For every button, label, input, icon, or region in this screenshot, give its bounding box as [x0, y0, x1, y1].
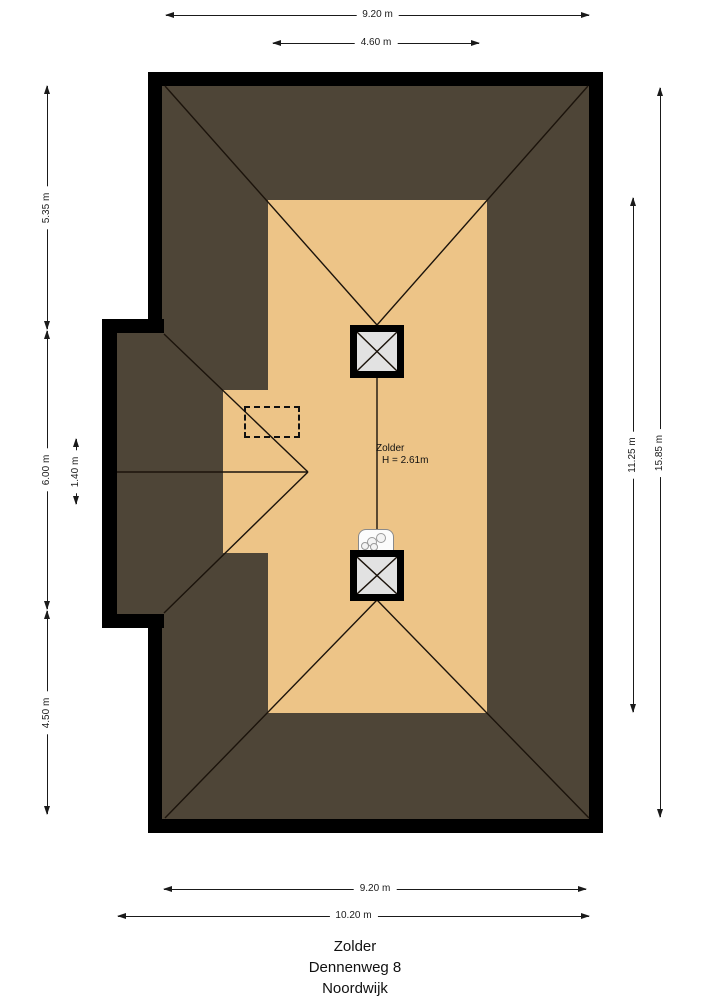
- dimension-left-inner: 1.40 m: [69, 438, 83, 505]
- dimension-left-upper: 5.35 m: [40, 85, 54, 330]
- chimney-bottom: [350, 550, 404, 601]
- title-room: Zolder: [255, 936, 455, 957]
- chimney-top: [350, 325, 404, 378]
- flue-pipe-icon: [361, 542, 369, 550]
- dimension-top-inner: 4.60 m: [272, 36, 480, 50]
- title-city: Noordwijk: [255, 978, 455, 999]
- title-street: Dennenweg 8: [255, 957, 455, 978]
- dimension-bottom-inner: 9.20 m: [163, 882, 587, 896]
- dimension-label: 9.20 m: [356, 9, 399, 21]
- floorplan-canvas: Zolder H = 2.61m 9.20 m 4.60 m 5.35 m 6.…: [0, 0, 707, 1000]
- extension-roof-area: [117, 333, 164, 614]
- room-height: H = 2.61m: [376, 455, 428, 467]
- flue-pipes: [358, 529, 394, 551]
- chimney-cross-icon: [357, 557, 397, 594]
- dimension-bottom-outer: 10.20 m: [117, 909, 590, 923]
- dimension-right-outer: 15.85 m: [653, 87, 667, 818]
- room-label: Zolder H = 2.61m: [376, 443, 428, 467]
- dashed-opening-outline: [244, 406, 300, 438]
- chimney-cross-icon: [357, 332, 397, 371]
- room-name: Zolder: [376, 443, 428, 455]
- dimension-label: 4.60 m: [355, 37, 398, 49]
- dimension-right-inner: 11.25 m: [626, 197, 640, 713]
- dimension-left-middle: 6.00 m: [40, 330, 54, 610]
- title-block: Zolder Dennenweg 8 Noordwijk: [255, 936, 455, 999]
- dimension-label: 10.20 m: [329, 910, 377, 922]
- dimension-label: 11.25 m: [627, 431, 639, 478]
- dimension-label: 1.40 m: [70, 450, 82, 493]
- flue-pipe-icon: [376, 533, 386, 543]
- dimension-label: 4.50 m: [41, 691, 53, 734]
- dimension-label: 9.20 m: [354, 883, 397, 895]
- dimension-label: 6.00 m: [41, 449, 53, 492]
- dimension-label: 15.85 m: [654, 428, 666, 476]
- dimension-top-outer: 9.20 m: [165, 8, 590, 22]
- dimension-label: 5.35 m: [41, 186, 53, 229]
- dimension-left-lower: 4.50 m: [40, 610, 54, 815]
